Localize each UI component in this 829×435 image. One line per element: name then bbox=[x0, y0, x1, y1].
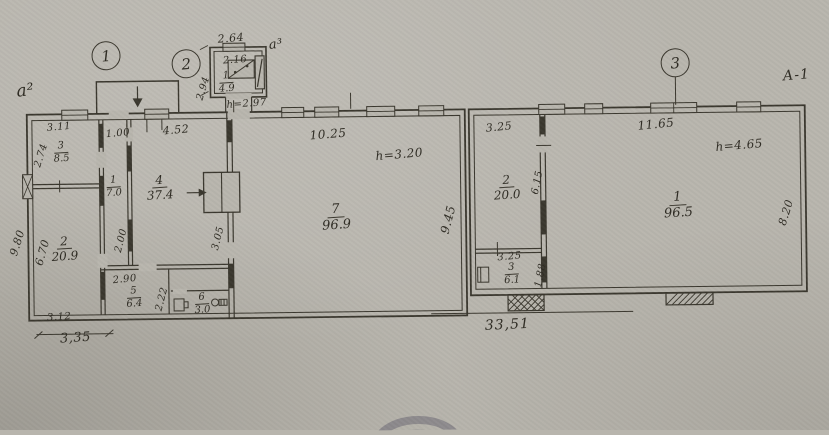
room-label-a5: 5 6.4 bbox=[125, 285, 142, 310]
dim-annex-inner-width: 2.16 bbox=[223, 54, 248, 67]
window-left-wall bbox=[22, 175, 32, 199]
porch-hatched-right bbox=[666, 292, 713, 305]
scanned-floorplan-sheet: а² А-1 1 2 3 2.64 а³ 2.16 2.94 h=2.97 1 … bbox=[0, 0, 829, 430]
room-number: 1 bbox=[669, 190, 686, 206]
dim-b-room2-top: 3.25 bbox=[485, 119, 513, 135]
room-area: 20.0 bbox=[493, 188, 520, 202]
oven-between-rooms-icon bbox=[186, 172, 239, 213]
dim-room4-top: 4.52 bbox=[162, 122, 189, 137]
annex-block-label: а³ bbox=[268, 37, 283, 53]
room-label-b1: 1 96.5 bbox=[662, 189, 693, 221]
room-label-annex-1: 1 4.9 bbox=[218, 70, 235, 95]
section-marker-3-label: 3 bbox=[670, 53, 681, 72]
room-label-a1: 1 7.0 bbox=[105, 174, 122, 199]
room-label-a7: 7 96.9 bbox=[321, 201, 352, 233]
room-area: 8.5 bbox=[53, 153, 70, 165]
stamp-smudge bbox=[376, 419, 461, 435]
room-number: 6 bbox=[194, 292, 209, 304]
sink-icon bbox=[212, 299, 228, 306]
porch-hatched-left bbox=[508, 294, 544, 310]
dim-outer-bottom: 3,35 bbox=[60, 330, 92, 347]
room-area: 37.4 bbox=[146, 188, 173, 202]
room-number: 3 bbox=[504, 262, 519, 274]
room-label-a6: 6 3.0 bbox=[193, 291, 210, 316]
plan-code-left: а² bbox=[15, 80, 35, 102]
room-area: 3.0 bbox=[194, 305, 211, 317]
building-a-outer-wall bbox=[27, 109, 467, 320]
dim-annex-outer-width: 2.64 bbox=[217, 31, 244, 46]
room-number: 1 bbox=[218, 71, 233, 83]
dim-room3-top: 3.11 bbox=[46, 121, 71, 134]
dim-room7-top: 10.25 bbox=[309, 126, 347, 143]
plan-tilt-wrapper: а² А-1 1 2 3 2.64 а³ 2.16 2.94 h=2.97 1 … bbox=[0, 0, 829, 435]
room-area: 96.5 bbox=[664, 205, 694, 220]
room-area: 6.1 bbox=[504, 275, 521, 287]
room-number: 1 bbox=[106, 175, 121, 187]
entry-arrow-head bbox=[133, 98, 143, 107]
room-label-b3: 3 6.1 bbox=[503, 261, 520, 286]
building-a-inner-wall-line bbox=[32, 115, 462, 315]
annex-door-icon bbox=[255, 56, 264, 89]
room-number: 4 bbox=[151, 174, 167, 189]
boiler-icon bbox=[478, 267, 489, 282]
toilet-icon bbox=[174, 299, 188, 311]
floorplan-linework bbox=[0, 0, 829, 435]
dim-room2-bottom: 3.12 bbox=[47, 311, 72, 324]
room-number: 5 bbox=[126, 286, 141, 298]
room-label-a4: 4 37.4 bbox=[145, 172, 173, 202]
room-area: 96.9 bbox=[322, 218, 352, 233]
room-number: 2 bbox=[56, 235, 72, 250]
room-label-a3: 3 8.5 bbox=[52, 140, 69, 165]
plan-code-right: А-1 bbox=[782, 66, 810, 84]
section-marker-1-label: 1 bbox=[101, 46, 112, 65]
room-label-b2: 2 20.0 bbox=[492, 172, 520, 202]
room-number: 7 bbox=[327, 202, 344, 218]
room-number: 2 bbox=[498, 173, 514, 188]
section-marker-2-label: 2 bbox=[181, 54, 192, 73]
room-area: 20.9 bbox=[51, 249, 78, 263]
room-label-a2: 2 20.9 bbox=[50, 233, 78, 263]
dim-overall-bottom: 33,51 bbox=[484, 316, 530, 334]
room-area: 6.4 bbox=[126, 298, 143, 310]
room-area: 4.9 bbox=[219, 83, 236, 95]
room-area: 7.0 bbox=[106, 188, 123, 200]
room-number: 3 bbox=[53, 141, 68, 153]
